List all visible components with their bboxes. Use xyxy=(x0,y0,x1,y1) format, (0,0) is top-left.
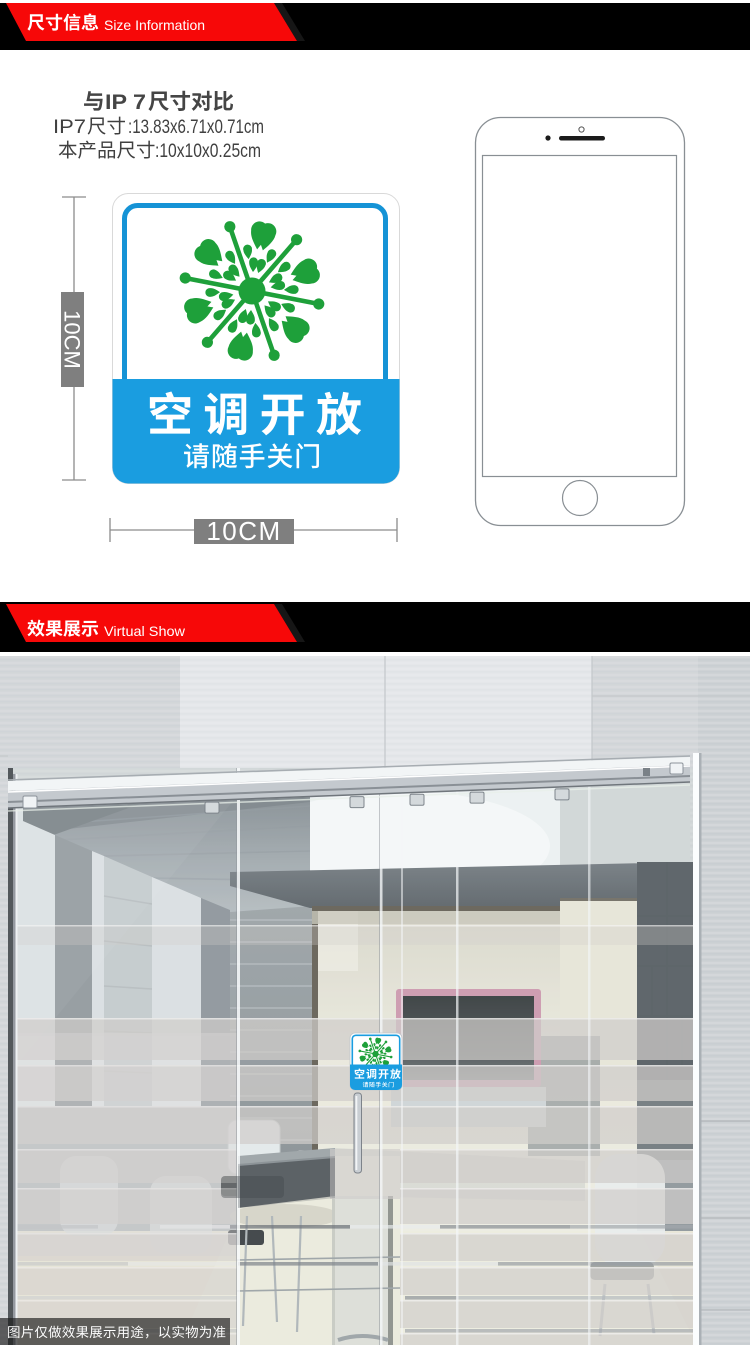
svg-text:Size Information: Size Information xyxy=(104,17,205,33)
svg-text::13.83x6.71x0.71cm: :13.83x6.71x0.71cm xyxy=(128,116,264,138)
svg-text::10x10x0.25cm: :10x10x0.25cm xyxy=(155,140,261,162)
svg-text:IP 7: IP 7 xyxy=(105,90,146,114)
svg-text:Virtual Show: Virtual Show xyxy=(104,623,186,639)
svg-text:IP7: IP7 xyxy=(53,116,86,138)
svg-text:10CM: 10CM xyxy=(206,516,281,546)
svg-text:10CM: 10CM xyxy=(60,310,85,369)
